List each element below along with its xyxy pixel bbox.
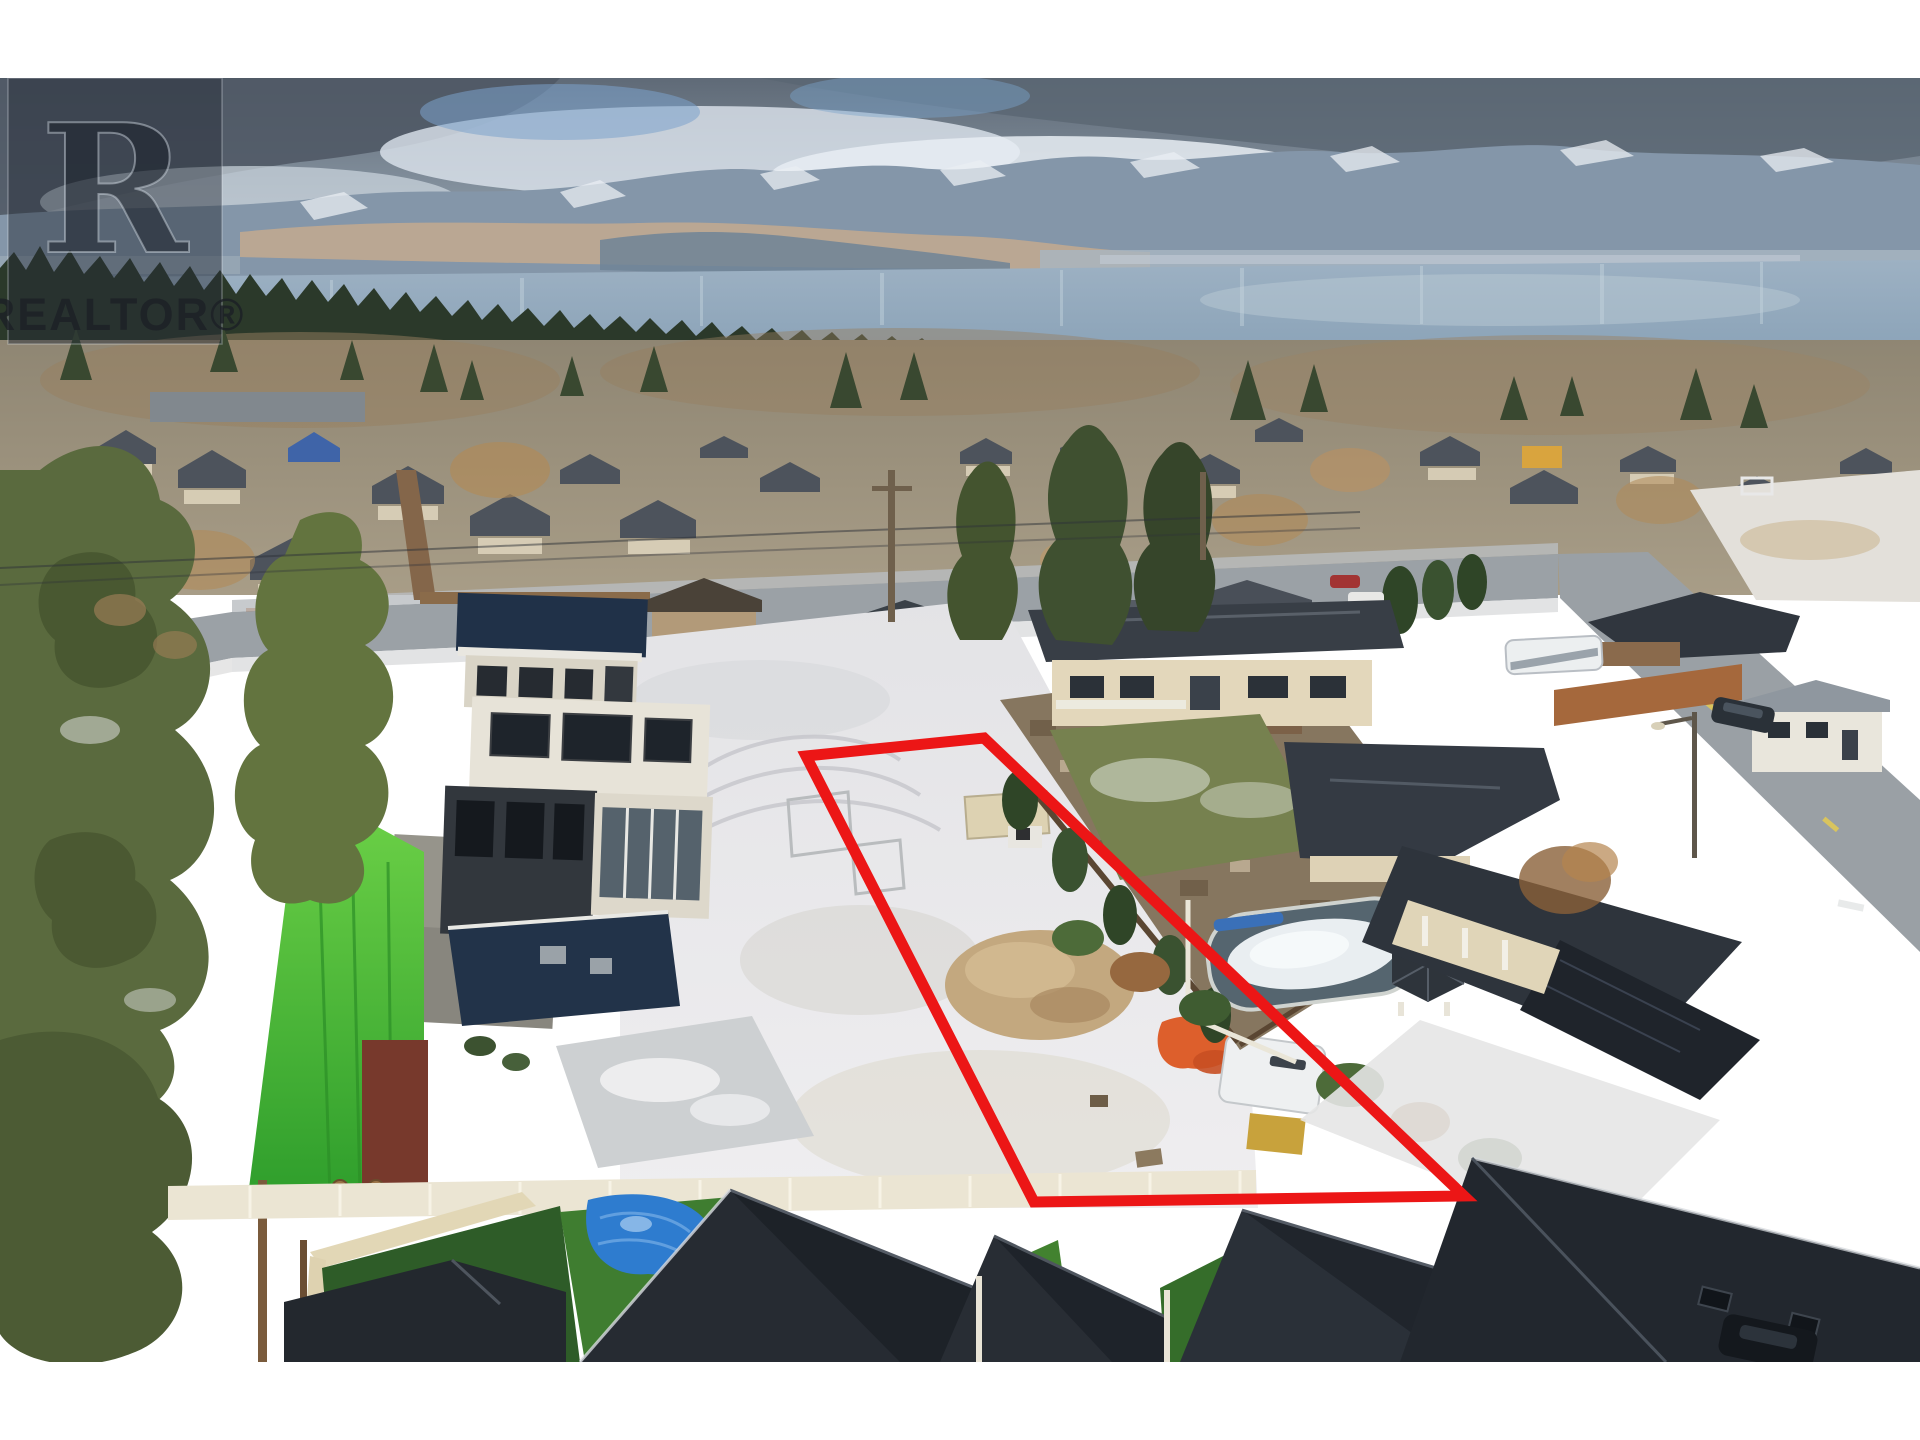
rooftop-unit	[590, 958, 612, 974]
door	[1190, 676, 1220, 710]
yellow-house	[1522, 446, 1562, 468]
debris	[1090, 1095, 1108, 1107]
street-lamp	[1651, 722, 1665, 730]
gazebo-post	[1444, 1002, 1450, 1016]
deck-rail	[1056, 700, 1186, 709]
window	[455, 800, 495, 857]
bush	[1052, 920, 1104, 956]
red-car	[1330, 575, 1360, 588]
modern-house-lower	[440, 696, 716, 943]
window	[505, 802, 545, 859]
utility-pole	[888, 470, 895, 622]
door	[1842, 730, 1858, 760]
rv-trailer	[1505, 636, 1603, 675]
black-frame-window	[490, 713, 549, 757]
commercial-strip	[150, 392, 365, 422]
field-grass-patch	[1740, 520, 1880, 560]
golden-bare-tree	[1212, 494, 1308, 546]
shrub	[502, 1053, 530, 1071]
lamp-post	[1692, 712, 1697, 858]
window	[476, 665, 507, 696]
trampled-snow	[740, 905, 980, 1015]
window	[1310, 676, 1346, 698]
entry-volume	[604, 666, 633, 707]
bare-shrub	[153, 631, 197, 659]
bare-shrub	[94, 594, 146, 626]
cedar-tree	[1422, 560, 1454, 620]
pole-crossarm	[872, 486, 912, 491]
maroon-roof-section	[362, 1040, 428, 1196]
window	[1120, 676, 1154, 698]
golden-bare-tree	[1616, 476, 1704, 524]
snow-fleck	[60, 716, 120, 744]
cedar-tree	[1103, 885, 1137, 945]
cedar-tree	[1457, 554, 1487, 610]
snow-patch	[600, 1058, 720, 1102]
porch-post	[1422, 916, 1428, 946]
fence-separator	[976, 1276, 982, 1362]
gazebo-post	[1398, 1002, 1404, 1016]
window	[564, 669, 593, 700]
listing-photo-canvas: R REALTOR®	[0, 0, 1920, 1440]
black-frame-window	[562, 714, 632, 762]
snow-patch	[690, 1094, 770, 1126]
shrub	[464, 1036, 496, 1056]
frost-patch	[1200, 782, 1300, 818]
bare-tree-haze	[1230, 335, 1870, 435]
lake-sheen	[1200, 274, 1800, 326]
blue-sky-patch	[420, 84, 700, 140]
window	[1070, 676, 1104, 698]
window	[1806, 722, 1828, 738]
blue-sky-patch	[790, 74, 1030, 118]
golden-bare-tree	[450, 442, 550, 498]
gravel-shadow	[1030, 987, 1110, 1023]
aerial-photo: R REALTOR®	[0, 0, 1920, 1440]
bush-rust	[1110, 952, 1170, 992]
realtor-monogram: R	[40, 85, 189, 294]
trampled-snow	[790, 1050, 1170, 1190]
snow-fleck	[124, 988, 176, 1012]
golden-bare-tree	[1310, 448, 1390, 492]
realtor-label: REALTOR®	[0, 289, 245, 340]
bare-tree-haze	[600, 328, 1200, 416]
rancher-walls	[1600, 642, 1680, 666]
black-frame-window	[644, 719, 691, 763]
window	[553, 803, 585, 860]
window	[1248, 676, 1288, 698]
rooftop-unit	[540, 946, 566, 964]
tarp-glint	[620, 1216, 652, 1232]
flat-navy-roof	[456, 593, 648, 658]
yellow-bin	[1246, 1113, 1305, 1155]
modern-house-upper	[454, 593, 648, 714]
utility-pole	[1200, 472, 1206, 560]
evergreen-canopy	[0, 446, 214, 1115]
flat-navy-roof-low	[448, 912, 680, 1026]
frost-patch	[1090, 758, 1210, 802]
fence-separator	[1164, 1290, 1170, 1362]
window	[518, 667, 553, 698]
realtor-watermark: R REALTOR®	[0, 78, 245, 344]
bush	[1179, 990, 1231, 1026]
porch-post	[1502, 940, 1508, 970]
bare-tree-lit	[1562, 842, 1618, 882]
porch-post	[1462, 928, 1468, 958]
